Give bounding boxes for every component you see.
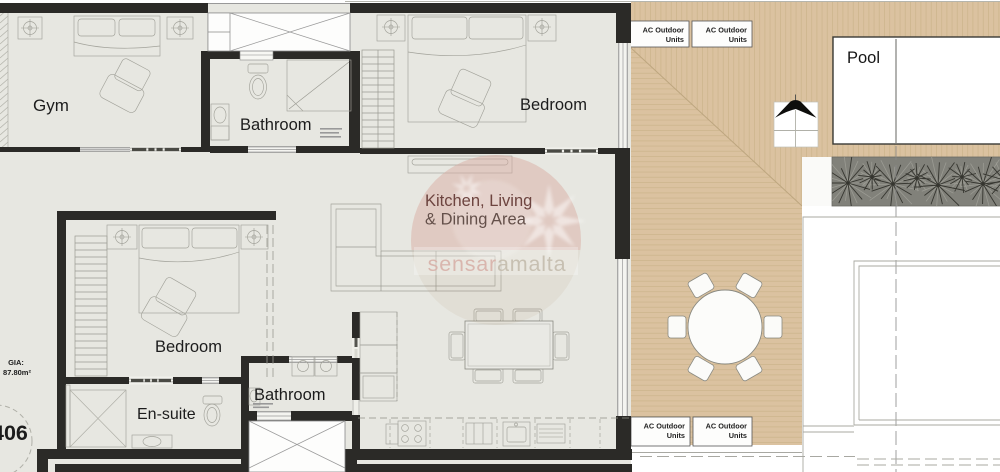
svg-text:sensaramalta: sensaramalta [428,252,567,276]
svg-text:Bathroom: Bathroom [240,116,312,134]
svg-text:406: 406 [0,421,28,445]
svg-text:GIA:: GIA: [8,358,24,367]
svg-text:Pool: Pool [847,49,880,67]
svg-text:Units: Units [666,35,684,44]
svg-text:AC Outdoor: AC Outdoor [643,26,685,35]
svg-text:Units: Units [667,431,685,440]
svg-text:En-suite: En-suite [137,406,196,423]
svg-text:Bathroom: Bathroom [254,386,326,404]
svg-text:AC Outdoor: AC Outdoor [706,26,748,35]
svg-text:Kitchen, Living: Kitchen, Living [425,192,532,210]
svg-text:AC Outdoor: AC Outdoor [706,422,748,431]
svg-text:Units: Units [729,431,747,440]
svg-text:Gym: Gym [33,96,69,115]
svg-text:Units: Units [729,35,747,44]
svg-text:Bedroom: Bedroom [155,338,222,356]
svg-text:Bedroom: Bedroom [520,96,587,114]
svg-text:AC Outdoor: AC Outdoor [644,422,686,431]
svg-text:87.80m²: 87.80m² [3,368,31,377]
svg-text:& Dining Area: & Dining Area [425,211,527,229]
